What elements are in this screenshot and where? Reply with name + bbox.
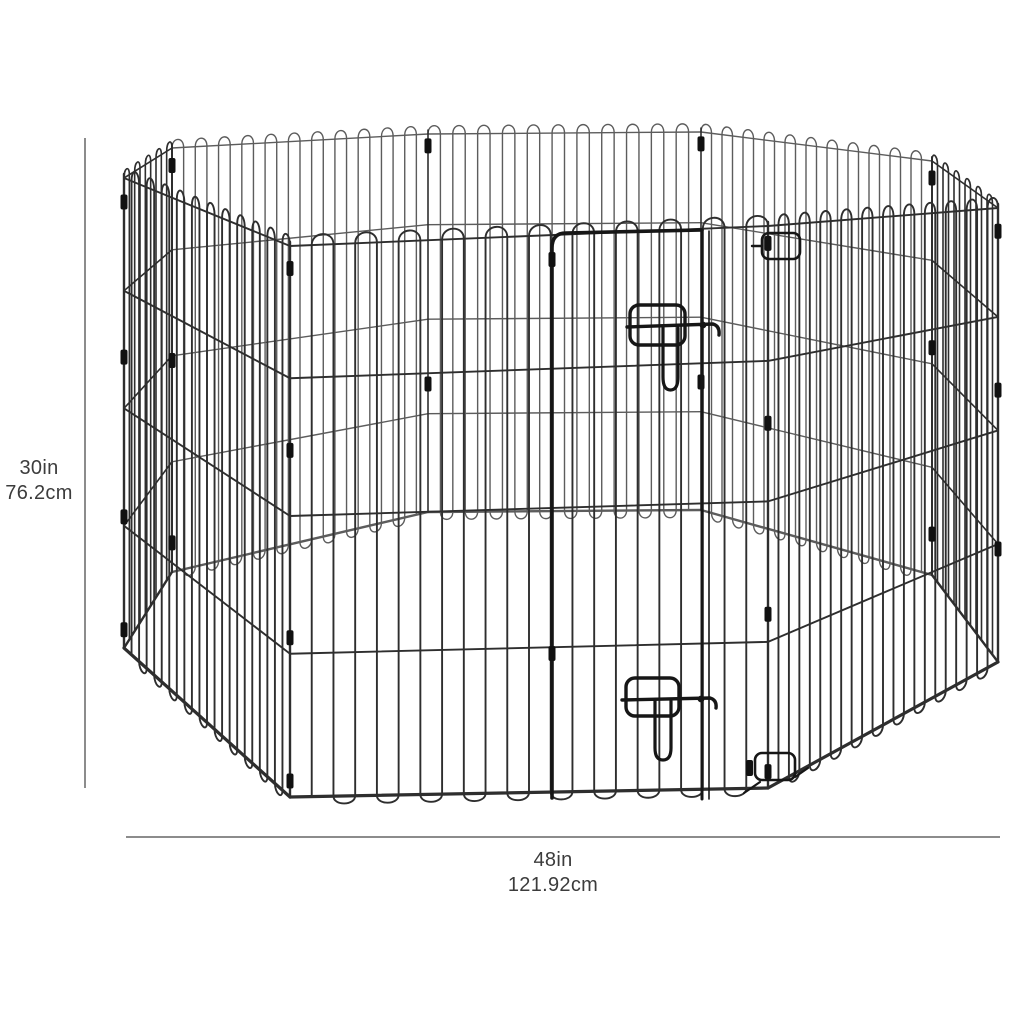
width-dimension-line <box>126 836 1000 838</box>
product-dimension-diagram: 30in 76.2cm 48in 121.92cm <box>0 0 1010 1010</box>
panel-joint-clip <box>765 607 772 622</box>
panel-joint-clip <box>121 509 128 524</box>
panel-joint-clip <box>287 773 294 788</box>
panel-joint-clip <box>995 542 1002 557</box>
panel-joint-clip <box>169 158 176 173</box>
width-label-inches: 48in <box>453 848 653 873</box>
panel-joint-clip <box>425 376 432 391</box>
latch-keeper-bracket <box>752 233 800 259</box>
panel-joint-clip <box>121 195 128 210</box>
pen-panel-back-left-panel <box>172 127 428 576</box>
height-dimension-label: 30in 76.2cm <box>0 456 78 506</box>
panel-joint-clip <box>929 340 936 355</box>
width-dimension-label: 48in 121.92cm <box>453 848 653 898</box>
panel-joint-clip <box>169 353 176 368</box>
panel-joint-clip <box>121 350 128 365</box>
panel-joint-clip <box>929 171 936 186</box>
pen-panel-back-right-panel <box>701 124 932 575</box>
panel-joint-clip <box>287 443 294 458</box>
height-label-centimeters: 76.2cm <box>0 481 78 506</box>
panel-joint-clip <box>995 383 1002 398</box>
panel-joint-clip <box>929 527 936 542</box>
panel-joint-clip <box>287 261 294 276</box>
panel-joint-clip <box>287 630 294 645</box>
panel-joint-clip <box>765 764 772 779</box>
width-label-centimeters: 121.92cm <box>453 873 653 898</box>
panel-joint-clip <box>995 224 1002 239</box>
panel-joint-clip <box>425 138 432 153</box>
panel-joint-clip <box>765 236 772 251</box>
panel-joint-clip <box>169 535 176 550</box>
panel-joint-clip <box>765 416 772 431</box>
panel-joint-clip <box>121 622 128 637</box>
height-dimension-line <box>84 138 86 788</box>
panel-joint-clip <box>698 136 705 151</box>
height-label-inches: 30in <box>0 456 78 481</box>
